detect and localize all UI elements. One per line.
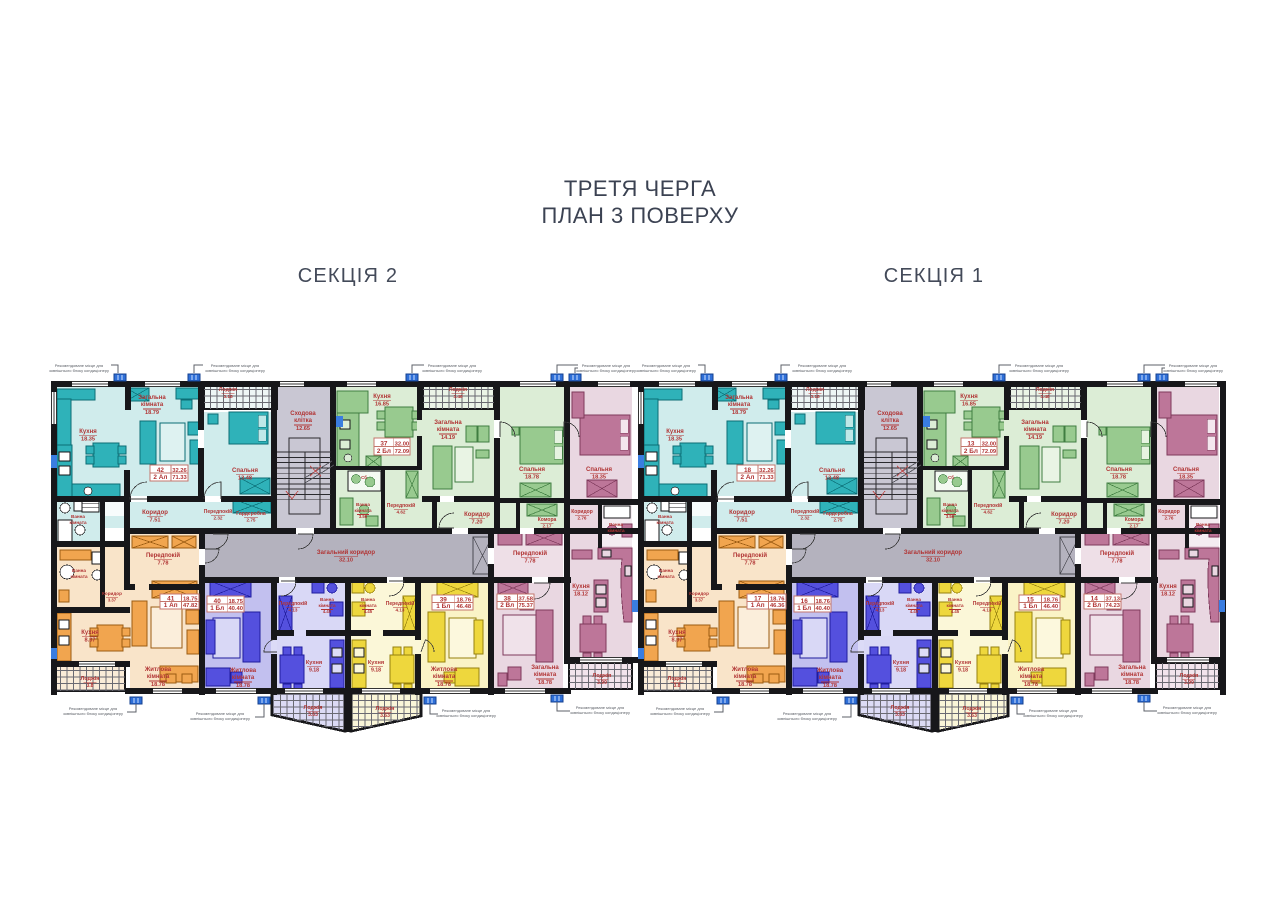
svg-text:32.10: 32.10 [926,558,940,564]
svg-text:13.48: 13.48 [238,476,252,482]
svg-text:40.40: 40.40 [228,606,243,612]
svg-text:18.76: 18.76 [815,599,830,605]
svg-text:Сходова: Сходова [877,411,903,417]
svg-text:47.82: 47.82 [183,603,198,609]
svg-text:7.78: 7.78 [745,561,756,567]
svg-text:7.51: 7.51 [150,518,161,524]
svg-text:18.78: 18.78 [437,682,451,688]
svg-text:1 Бл: 1 Бл [210,605,224,612]
svg-text:Лоджія: Лоджія [376,706,395,712]
svg-text:Комора: Комора [1125,517,1144,523]
svg-text:7.78: 7.78 [1112,559,1123,565]
svg-text:кімната: кімната [147,674,170,680]
svg-text:Житлова: Житлова [731,667,759,673]
svg-text:Житлова: Житлова [430,667,458,673]
svg-text:2.76: 2.76 [578,516,587,521]
svg-text:Ванна: Ванна [1196,522,1210,527]
svg-text:12.65: 12.65 [883,426,897,432]
svg-text:Передпокій: Передпокій [791,508,819,515]
svg-text:2.17: 2.17 [543,524,552,529]
svg-text:Кухня: Кухня [79,429,97,435]
svg-text:Лоджія: Лоджія [449,387,467,393]
svg-text:3.63: 3.63 [967,713,977,719]
svg-text:кімната: кімната [1024,427,1047,433]
svg-text:40.40: 40.40 [815,606,830,612]
svg-text:46.40: 46.40 [1044,604,1059,610]
svg-text:2 Ал: 2 Ал [740,474,754,481]
svg-text:18.78: 18.78 [538,680,552,686]
svg-text:18.75: 18.75 [228,599,243,605]
svg-text:Коридор: Коридор [1051,512,1077,518]
svg-text:16.85: 16.85 [375,402,389,408]
svg-text:3.56: 3.56 [359,514,368,519]
svg-text:Передпокій: Передпокій [513,550,547,557]
svg-text:Ванна: Ванна [72,568,86,573]
svg-text:4.13: 4.13 [983,608,992,613]
svg-text:СЕКЦІЯ 2: СЕКЦІЯ 2 [298,265,399,287]
svg-text:Кухня: Кухня [572,584,590,590]
svg-text:1 Бл: 1 Бл [797,605,811,612]
svg-text:зовнішнього блоку кондиціонеру: зовнішнього блоку кондиціонеру [1009,368,1069,373]
svg-text:кімната: кімната [656,520,674,525]
svg-text:Ванна: Ванна [361,597,375,602]
svg-text:18.76: 18.76 [457,597,472,603]
svg-text:4.62: 4.62 [984,510,993,515]
svg-text:Передпокій: Передпокій [733,552,767,559]
svg-text:клітка: клітка [294,418,312,424]
svg-text:Передпокій: Передпокій [387,502,415,509]
svg-text:18.35: 18.35 [668,437,682,443]
svg-text:Коридор: Коридор [102,591,122,596]
svg-text:кімната: кімната [141,402,164,408]
svg-text:кімната: кімната [433,674,456,680]
svg-text:18.78: 18.78 [151,682,165,688]
svg-text:зовнішнього блоку кондиціонеру: зовнішнього блоку кондиціонеру [570,710,630,715]
svg-text:2.32: 2.32 [214,516,223,521]
svg-text:2.76: 2.76 [1165,516,1174,521]
svg-text:Загальна: Загальна [138,395,166,401]
svg-text:Коридор: Коридор [689,591,709,596]
svg-text:1 Ап: 1 Ап [164,602,178,609]
svg-text:75.37: 75.37 [518,603,533,609]
svg-text:12.65: 12.65 [296,426,310,432]
svg-text:Житлова: Житлова [229,668,257,674]
svg-text:Кухня: Кухня [666,429,684,435]
svg-text:3.37: 3.37 [695,597,704,602]
svg-text:32.10: 32.10 [339,558,353,564]
svg-text:8.37: 8.37 [672,638,683,644]
svg-text:Кухня: Кухня [81,630,99,636]
svg-text:2.17: 2.17 [1130,524,1139,529]
svg-text:3.48: 3.48 [1040,394,1050,400]
svg-text:2 Бл: 2 Бл [377,448,391,455]
svg-text:3.99: 3.99 [1184,680,1194,686]
svg-text:кімната: кімната [232,675,255,681]
svg-text:Кухня: Кухня [306,660,322,666]
svg-text:Спальня: Спальня [1173,467,1199,473]
svg-text:Лоджія: Лоджія [1036,387,1054,393]
svg-text:Ванна: Ванна [658,514,672,519]
svg-text:71.33: 71.33 [759,475,774,481]
svg-text:3.48: 3.48 [453,394,463,400]
svg-text:Коридор: Коридор [571,509,593,515]
svg-text:Ванна: Ванна [943,502,957,507]
svg-text:3.18: 3.18 [223,394,233,400]
svg-text:2.32: 2.32 [801,516,810,521]
svg-text:кімната: кімната [734,674,757,680]
svg-text:1 Бл: 1 Бл [1023,603,1037,610]
svg-text:7.78: 7.78 [158,561,169,567]
svg-text:Передпокій: Передпокій [204,508,232,515]
svg-text:кімната: кімната [657,574,675,579]
svg-text:3.63: 3.63 [308,712,318,718]
svg-text:Гардеробна: Гардеробна [823,510,853,517]
svg-text:Комора: Комора [538,517,557,523]
svg-text:2 Бл: 2 Бл [964,448,978,455]
svg-text:13: 13 [967,440,975,447]
svg-text:Кухня: Кухня [955,660,971,666]
svg-text:18.79: 18.79 [732,410,746,416]
svg-text:кімната: кімната [318,603,336,608]
svg-text:Загальна: Загальна [531,665,559,671]
svg-text:3.56: 3.56 [946,514,955,519]
svg-text:Передпокій: Передпокій [974,502,1002,509]
svg-text:зовнішнього блоку кондиціонеру: зовнішнього блоку кондиціонеру [576,368,636,373]
svg-text:46.48: 46.48 [457,604,472,610]
svg-text:Лоджія: Лоджія [963,706,982,712]
svg-text:18.78: 18.78 [1112,475,1126,481]
svg-text:71.33: 71.33 [172,475,187,481]
svg-text:зовнішнього блоку кондиціонеру: зовнішнього блоку кондиціонеру [205,368,265,373]
svg-text:Ванна: Ванна [71,514,85,519]
svg-text:Кухня: Кухня [668,630,686,636]
svg-text:2.75: 2.75 [247,518,256,523]
svg-text:кімната: кімната [69,520,87,525]
svg-text:7.51: 7.51 [737,518,748,524]
svg-text:7.20: 7.20 [472,520,483,526]
svg-text:4.13: 4.13 [396,608,405,613]
svg-text:18.35: 18.35 [592,475,606,481]
svg-text:ПЛАН 3 ПОВЕРХУ: ПЛАН 3 ПОВЕРХУ [542,203,739,228]
svg-text:18.78: 18.78 [1125,680,1139,686]
svg-text:Лоджія: Лоджія [668,676,687,682]
svg-text:18.78: 18.78 [525,475,539,481]
svg-text:кімната: кімната [1194,528,1212,533]
svg-text:СЕКЦІЯ 1: СЕКЦІЯ 1 [884,265,985,287]
svg-text:4.45: 4.45 [910,609,919,614]
svg-text:Ванна: Ванна [320,597,334,602]
svg-text:18.78: 18.78 [823,683,837,689]
svg-text:Передпокій: Передпокій [279,600,307,607]
svg-text:Загальний коридор: Загальний коридор [904,549,963,556]
svg-text:3.63: 3.63 [380,713,390,719]
svg-text:16.85: 16.85 [962,402,976,408]
svg-text:18.79: 18.79 [145,410,159,416]
svg-text:Кухня: Кухня [893,660,909,666]
svg-text:18.75: 18.75 [183,596,198,602]
svg-text:32.26: 32.26 [172,468,187,474]
svg-text:3.8: 3.8 [87,683,94,689]
svg-text:Ванна: Ванна [356,502,370,507]
svg-text:3.37: 3.37 [108,597,117,602]
svg-text:2.75: 2.75 [834,518,843,523]
svg-text:Лоджія: Лоджія [1180,673,1199,679]
svg-text:37: 37 [380,440,388,447]
svg-text:Сб: Сб [361,475,367,480]
svg-text:кімната: кімната [728,402,751,408]
svg-text:зовнішнього блоку кондиціонеру: зовнішнього блоку кондиціонеру [422,368,482,373]
svg-text:4.45: 4.45 [364,609,373,614]
svg-text:зовнішнього блоку кондиціонеру: зовнішнього блоку кондиціонеру [777,716,837,721]
svg-text:Кухня: Кухня [373,394,391,400]
svg-text:18.78: 18.78 [738,682,752,688]
svg-text:ТРЕТЯ ЧЕРГА: ТРЕТЯ ЧЕРГА [564,176,716,201]
svg-text:Спальня: Спальня [232,468,258,474]
svg-text:37.13: 37.13 [1105,596,1120,602]
svg-text:кімната: кімната [941,508,959,513]
svg-text:40: 40 [214,598,222,605]
svg-text:Загальна: Загальна [434,420,462,426]
svg-text:14.19: 14.19 [1028,435,1042,441]
svg-text:9.18: 9.18 [958,667,968,673]
svg-text:зовнішнього блоку кондиціонеру: зовнішнього блоку кондиціонеру [63,711,123,716]
svg-text:4.13: 4.13 [876,608,885,613]
svg-text:18.76: 18.76 [1044,597,1059,603]
svg-text:Кухня: Кухня [1159,584,1177,590]
svg-text:кімната: кімната [1121,672,1144,678]
svg-text:32.00: 32.00 [982,441,997,447]
svg-text:8.37: 8.37 [85,638,96,644]
svg-text:Спальня: Спальня [519,467,545,473]
svg-text:зовнішнього блоку кондиціонеру: зовнішнього блоку кондиціонеру [436,713,496,718]
svg-text:Передпокій: Передпокій [386,600,414,607]
svg-text:2 Вл: 2 Вл [1087,602,1101,609]
svg-text:Загальна: Загальна [1021,420,1049,426]
svg-text:3.63: 3.63 [895,712,905,718]
svg-text:Передпокій: Передпокій [146,552,180,559]
svg-text:Житлова: Житлова [816,668,844,674]
svg-text:18.76: 18.76 [770,596,785,602]
svg-text:4.62: 4.62 [397,510,406,515]
svg-text:3.18: 3.18 [810,394,820,400]
svg-text:4.45: 4.45 [951,609,960,614]
svg-text:кімната: кімната [819,675,842,681]
svg-text:Ванна: Ванна [659,568,673,573]
svg-text:3.99: 3.99 [597,680,607,686]
svg-text:кімната: кімната [946,603,964,608]
svg-text:Лоджія: Лоджія [304,705,323,711]
svg-text:18.12: 18.12 [574,592,588,598]
svg-text:32.26: 32.26 [759,468,774,474]
svg-text:зовнішнього блоку кондиціонеру: зовнішнього блоку кондиціонеру [650,711,710,716]
svg-text:4.13: 4.13 [289,608,298,613]
svg-text:Спальня: Спальня [586,467,612,473]
svg-text:Лоджія: Лоджія [891,705,910,711]
svg-text:3.8: 3.8 [674,683,681,689]
svg-text:Коридор: Коридор [142,510,168,516]
svg-text:1 Бл: 1 Бл [436,603,450,610]
svg-text:Коридор: Коридор [729,510,755,516]
svg-text:Житлова: Житлова [1017,667,1045,673]
svg-text:Передпокій: Передпокій [1100,550,1134,557]
svg-text:зовнішнього блоку кондиціонеру: зовнішнього блоку кондиціонеру [1157,710,1217,715]
svg-text:кімната: кімната [607,528,625,533]
svg-text:7.78: 7.78 [525,559,536,565]
svg-text:кімната: кімната [1020,674,1043,680]
svg-text:Кухня: Кухня [960,394,978,400]
svg-text:зовнішнього блоку кондиціонеру: зовнішнього блоку кондиціонеру [1163,368,1223,373]
svg-text:Коридор: Коридор [1158,509,1180,515]
svg-text:Гардеробна: Гардеробна [236,510,266,517]
svg-text:74.23: 74.23 [1105,603,1120,609]
svg-text:72.09: 72.09 [982,449,997,455]
svg-text:кімната: кімната [359,603,377,608]
svg-text:18: 18 [744,467,752,474]
svg-text:16: 16 [801,598,809,605]
svg-text:Сб: Сб [948,475,954,480]
svg-text:Кухня: Кухня [368,660,384,666]
svg-text:Загальна: Загальна [725,395,753,401]
svg-text:зовнішнього блоку кондиціонеру: зовнішнього блоку кондиціонеру [1023,713,1083,718]
svg-text:32.00: 32.00 [395,441,410,447]
svg-text:клітка: клітка [881,418,899,424]
svg-text:18.35: 18.35 [81,437,95,443]
svg-text:кімната: кімната [437,427,460,433]
svg-text:Спальня: Спальня [819,468,845,474]
svg-text:Сходова: Сходова [290,411,316,417]
svg-text:1 Ап: 1 Ап [751,602,765,609]
svg-text:Ванна: Ванна [948,597,962,602]
svg-text:кімната: кімната [905,603,923,608]
svg-text:13.48: 13.48 [825,476,839,482]
svg-text:зовнішнього блоку кондиціонеру: зовнішнього блоку кондиціонеру [636,368,696,373]
svg-text:кімната: кімната [534,672,557,678]
svg-text:18.78: 18.78 [236,683,250,689]
svg-text:Лоджія: Лоджія [806,387,824,393]
svg-text:14.19: 14.19 [441,435,455,441]
svg-text:Передпокій: Передпокій [973,600,1001,607]
svg-text:Лоджія: Лоджія [593,673,612,679]
svg-text:Загальна: Загальна [1118,665,1146,671]
svg-text:зовнішнього блоку кондиціонеру: зовнішнього блоку кондиціонеру [49,368,109,373]
svg-text:Лоджія: Лоджія [81,676,100,682]
svg-text:Лоджія: Лоджія [219,387,237,393]
svg-text:42: 42 [157,467,165,474]
svg-text:Спальня: Спальня [1106,467,1132,473]
svg-text:9.18: 9.18 [309,667,319,673]
svg-text:зовнішнього блоку кондиціонеру: зовнішнього блоку кондиціонеру [792,368,852,373]
svg-text:Загальний коридор: Загальний коридор [317,549,376,556]
svg-text:9.18: 9.18 [896,667,906,673]
svg-text:18.35: 18.35 [1179,475,1193,481]
svg-text:кімната: кімната [70,574,88,579]
svg-text:Передпокій: Передпокій [866,600,894,607]
svg-text:37.58: 37.58 [518,596,533,602]
svg-text:Житлова: Житлова [144,667,172,673]
svg-text:Ванна: Ванна [609,522,623,527]
svg-text:72.09: 72.09 [395,449,410,455]
svg-text:4.45: 4.45 [323,609,332,614]
svg-text:46.36: 46.36 [770,603,785,609]
svg-text:18.12: 18.12 [1161,592,1175,598]
svg-text:9.18: 9.18 [371,667,381,673]
svg-text:7.20: 7.20 [1059,520,1070,526]
svg-text:зовнішнього блоку кондиціонеру: зовнішнього блоку кондиціонеру [190,716,250,721]
svg-text:кімната: кімната [354,508,372,513]
svg-text:2 Ал: 2 Ал [153,474,167,481]
svg-text:2 Вл: 2 Вл [500,602,514,609]
svg-text:Коридор: Коридор [464,512,490,518]
svg-text:18.78: 18.78 [1024,682,1038,688]
svg-text:Ванна: Ванна [907,597,921,602]
